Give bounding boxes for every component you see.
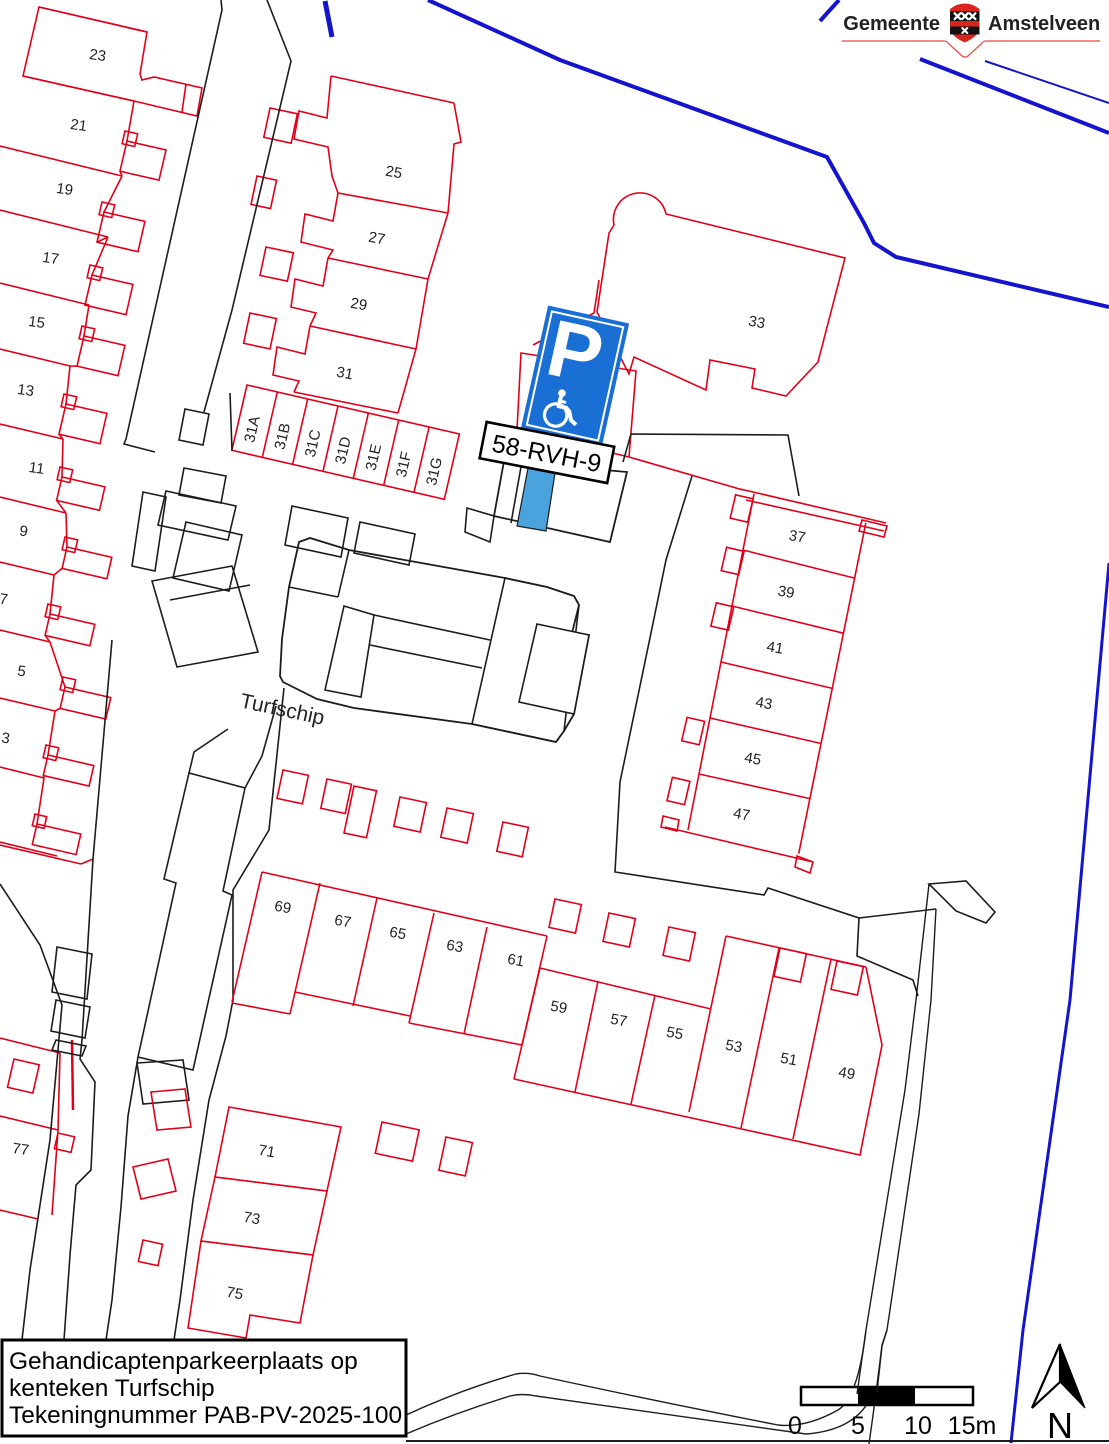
svg-text:11: 11 <box>28 459 46 478</box>
svg-text:41: 41 <box>765 638 784 658</box>
svg-text:Tekeningnummer PAB-PV-2025-100: Tekeningnummer PAB-PV-2025-100 <box>9 1402 402 1429</box>
svg-text:27: 27 <box>367 229 386 249</box>
svg-text:kenteken Turfschip: kenteken Turfschip <box>9 1375 215 1402</box>
svg-text:15m: 15m <box>948 1412 997 1440</box>
svg-text:21: 21 <box>69 116 88 135</box>
svg-text:Gemeente: Gemeente <box>843 13 940 35</box>
svg-text:10: 10 <box>904 1412 932 1440</box>
svg-text:39: 39 <box>776 583 795 603</box>
svg-text:31: 31 <box>335 364 354 384</box>
svg-text:23: 23 <box>88 46 107 65</box>
svg-text:73: 73 <box>242 1209 261 1229</box>
svg-text:15: 15 <box>27 313 46 332</box>
svg-text:55: 55 <box>665 1024 684 1044</box>
svg-text:25: 25 <box>384 163 403 183</box>
svg-text:49: 49 <box>837 1064 856 1084</box>
svg-text:33: 33 <box>747 313 766 333</box>
svg-text:45: 45 <box>743 749 762 769</box>
svg-text:N: N <box>1047 1405 1073 1444</box>
svg-text:71: 71 <box>257 1142 276 1162</box>
svg-text:75: 75 <box>225 1284 244 1304</box>
svg-text:5: 5 <box>851 1412 865 1440</box>
svg-text:51: 51 <box>779 1050 798 1070</box>
svg-text:43: 43 <box>754 694 773 714</box>
svg-text:57: 57 <box>609 1011 628 1031</box>
svg-text:47: 47 <box>732 805 751 825</box>
svg-text:61: 61 <box>506 951 525 971</box>
svg-text:37: 37 <box>787 527 806 547</box>
svg-text:19: 19 <box>55 180 74 199</box>
svg-text:Gehandicaptenparkeerplaats op: Gehandicaptenparkeerplaats op <box>9 1348 358 1375</box>
svg-text:13: 13 <box>16 381 35 400</box>
svg-text:Amstelveen: Amstelveen <box>988 13 1100 35</box>
svg-text:67: 67 <box>333 912 352 932</box>
svg-text:69: 69 <box>273 898 292 918</box>
svg-text:59: 59 <box>549 998 568 1018</box>
svg-text:53: 53 <box>724 1037 743 1057</box>
svg-text:17: 17 <box>41 249 60 268</box>
svg-text:77: 77 <box>11 1140 30 1159</box>
svg-text:0: 0 <box>788 1412 802 1440</box>
svg-text:29: 29 <box>349 295 368 315</box>
svg-text:63: 63 <box>445 937 464 957</box>
svg-text:65: 65 <box>388 924 407 944</box>
